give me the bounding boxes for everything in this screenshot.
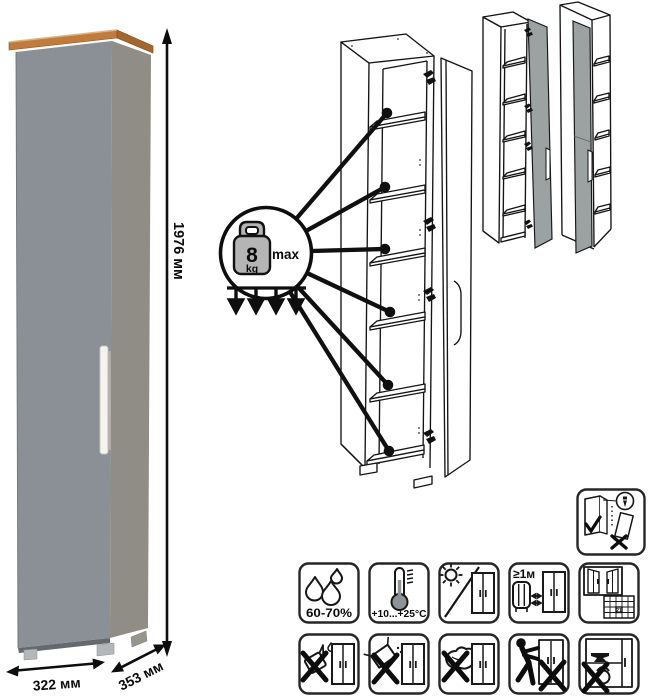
no-liquids-icon bbox=[300, 635, 359, 694]
temperature-icon: +10...+25°C bbox=[370, 564, 429, 623]
shelf bbox=[370, 185, 425, 203]
humidity-icon: 60-70% bbox=[300, 564, 359, 623]
screw-dot bbox=[397, 38, 399, 40]
heat-distance-label: ≥1м bbox=[513, 567, 535, 581]
shelf bbox=[370, 312, 425, 330]
weight-icon: 8 kg bbox=[234, 222, 270, 275]
shelf-dot bbox=[380, 182, 391, 193]
calendar-icon: 21 bbox=[604, 596, 634, 618]
open-door bbox=[441, 58, 472, 477]
height-arrowhead-up bbox=[162, 28, 172, 44]
wardrobe-glyph bbox=[332, 644, 354, 684]
care-icons-grid: 60-70% +10...+25°C bbox=[300, 564, 639, 694]
carcass-left-panel bbox=[341, 42, 369, 468]
interior-top-edge bbox=[383, 61, 427, 69]
max-label: max bbox=[272, 247, 300, 262]
no-abrasives-icon bbox=[364, 635, 429, 694]
screw-head bbox=[623, 497, 627, 500]
shelf-dot bbox=[383, 380, 394, 391]
width-arrow bbox=[11, 663, 100, 671]
width-label: 322 мм bbox=[32, 674, 81, 693]
cabinet-door-front bbox=[16, 41, 112, 648]
cabinet-foot bbox=[24, 649, 37, 660]
line-drawing-cabinet bbox=[341, 34, 472, 488]
bottom-panel bbox=[367, 445, 424, 465]
drawing-foot bbox=[414, 476, 432, 488]
wardrobe-glyph bbox=[402, 644, 424, 684]
screw-dot bbox=[426, 52, 428, 54]
variant-door-right-hinged bbox=[483, 12, 552, 248]
variant-door-handle bbox=[546, 148, 550, 180]
cabinet-foot bbox=[97, 643, 114, 656]
wall-mount-safety-icon bbox=[578, 490, 645, 555]
height-label: 1976 мм bbox=[170, 222, 186, 280]
product-infographic: 1976 мм 322 мм 353 мм bbox=[0, 0, 648, 700]
radiator-icon bbox=[513, 582, 530, 608]
cabinet-side-panel bbox=[110, 41, 151, 638]
screw-dot bbox=[351, 45, 353, 47]
shelf-dot bbox=[380, 244, 391, 255]
shelf-load-badge: 8 kg max bbox=[221, 208, 312, 313]
variant-door-panel bbox=[528, 19, 552, 248]
wardrobe-glyph bbox=[472, 573, 494, 613]
shelf-dot bbox=[385, 307, 396, 318]
cabinet-foot bbox=[131, 631, 147, 647]
shelf-dot bbox=[382, 108, 393, 119]
humidity-label: 60-70% bbox=[306, 606, 352, 620]
hinge-icon bbox=[423, 429, 436, 444]
drawing-door-handle bbox=[454, 281, 461, 345]
variant-door-handle bbox=[588, 150, 592, 182]
wardrobe-glyph bbox=[472, 644, 494, 684]
door-handle-shadow bbox=[108, 351, 111, 450]
photo-cabinet bbox=[9, 30, 153, 660]
heat-distance-icon: ≥1м bbox=[510, 564, 569, 623]
variant-shelves bbox=[594, 56, 610, 214]
infographic-canvas: 1976 мм 322 мм 353 мм bbox=[0, 0, 648, 700]
shelf-dot bbox=[384, 446, 395, 457]
carcass-right-edge bbox=[430, 56, 434, 468]
shelf bbox=[370, 384, 425, 402]
no-direct-sunlight-icon bbox=[440, 564, 499, 623]
door-handle bbox=[100, 346, 108, 454]
width-arrowhead-right bbox=[93, 659, 106, 670]
temperature-label: +10...+25°C bbox=[372, 608, 427, 620]
do-not-drag-icon bbox=[510, 635, 569, 694]
ventilation-icon: 21 bbox=[580, 564, 639, 623]
do-not-overload-icon bbox=[580, 635, 639, 694]
depth-label: 353 мм bbox=[116, 658, 166, 694]
height-arrowhead-down bbox=[162, 641, 172, 657]
variant-door-left-hinged bbox=[560, 2, 611, 253]
calendar-day-label: 21 bbox=[616, 608, 622, 614]
no-scrubbing-icon bbox=[440, 635, 499, 694]
wardrobe-glyph bbox=[543, 572, 565, 612]
width-arrowhead-left bbox=[6, 666, 19, 677]
load-unit: kg bbox=[246, 263, 258, 275]
